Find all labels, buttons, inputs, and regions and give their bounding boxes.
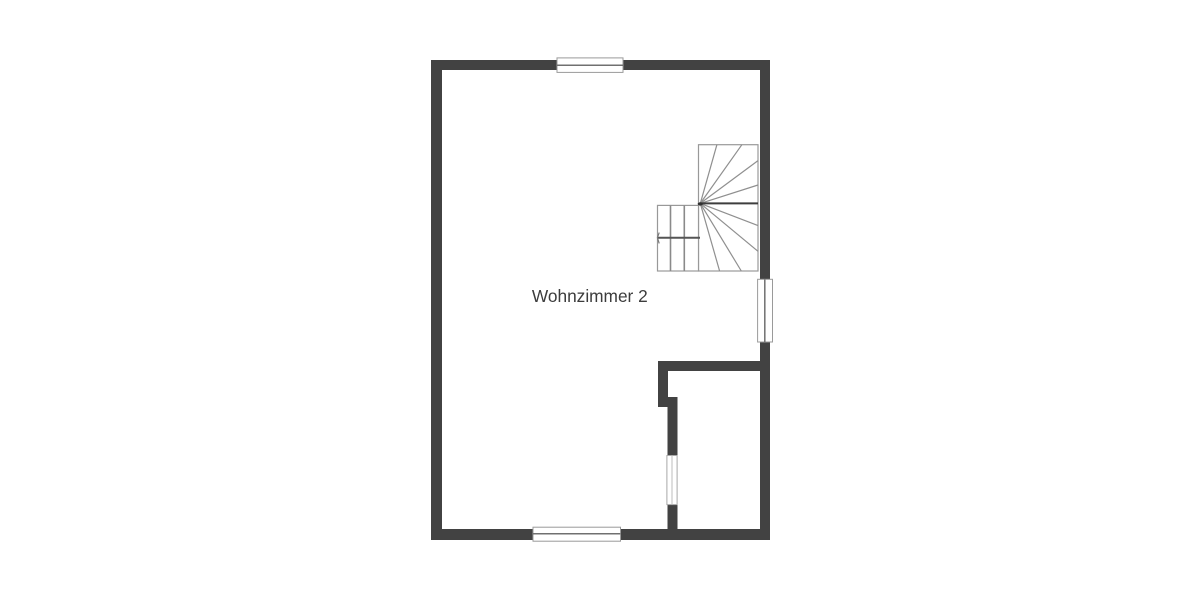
svg-text:Wohnzimmer 2: Wohnzimmer 2	[532, 286, 648, 306]
